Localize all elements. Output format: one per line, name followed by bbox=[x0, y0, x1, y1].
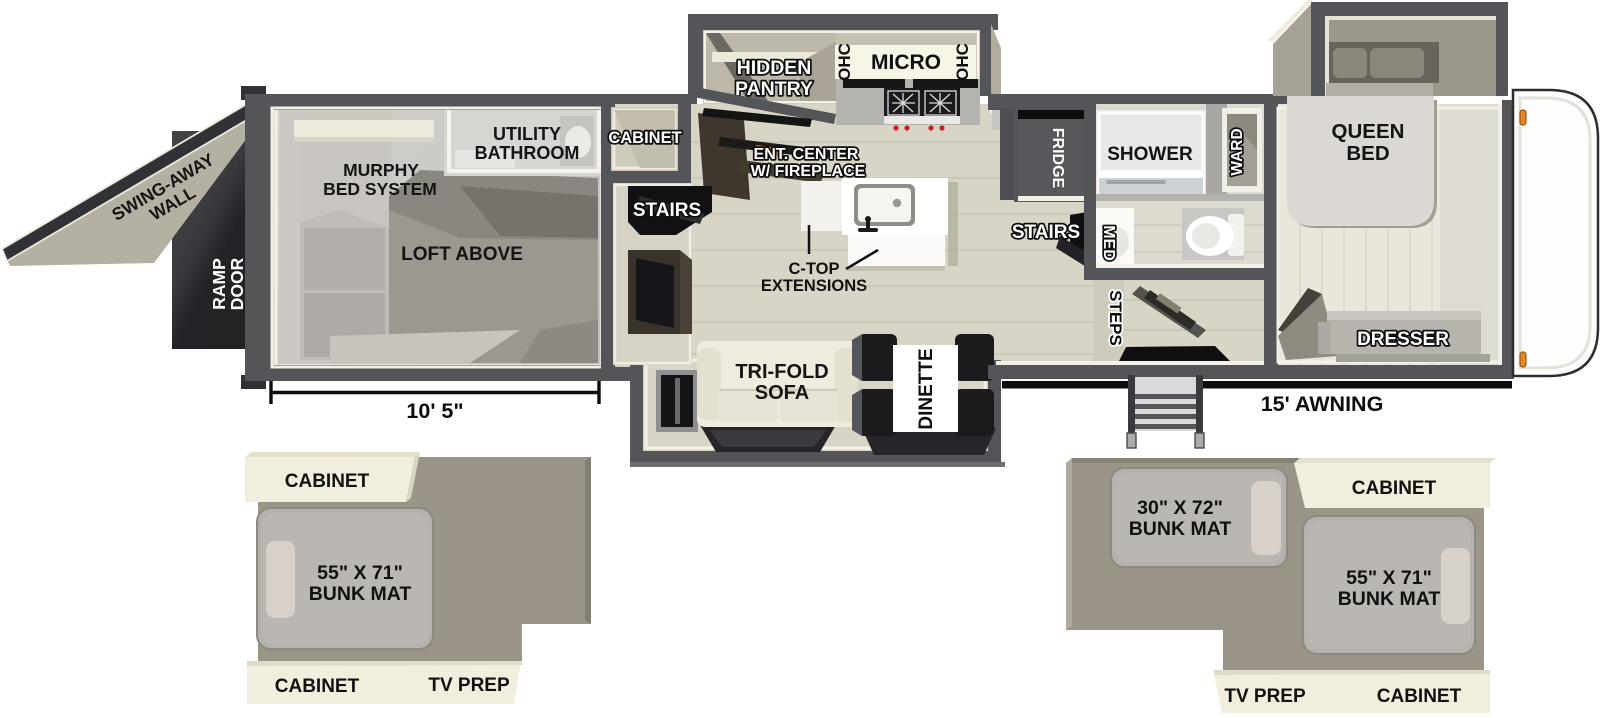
svg-text:MURPHY: MURPHY bbox=[343, 160, 419, 180]
svg-text:TV PREP: TV PREP bbox=[1224, 686, 1306, 707]
svg-text:DINETTE: DINETTE bbox=[916, 348, 937, 429]
svg-text:ENT. CENTER: ENT. CENTER bbox=[754, 146, 859, 163]
svg-text:FRIDGE: FRIDGE bbox=[1049, 128, 1066, 189]
svg-text:STAIRS: STAIRS bbox=[633, 200, 701, 221]
svg-text:OHC: OHC bbox=[953, 43, 972, 81]
svg-text:C-TOP: C-TOP bbox=[788, 260, 839, 278]
svg-text:HIDDEN: HIDDEN bbox=[737, 57, 812, 79]
svg-text:CABINET: CABINET bbox=[1352, 478, 1437, 499]
svg-text:SHOWER: SHOWER bbox=[1107, 144, 1193, 165]
svg-text:TRI-FOLD: TRI-FOLD bbox=[735, 361, 828, 383]
svg-text:WARD: WARD bbox=[1229, 128, 1246, 175]
svg-text:OHC: OHC bbox=[835, 43, 854, 81]
svg-text:55" X 71": 55" X 71" bbox=[1346, 567, 1432, 589]
svg-text:QUEEN: QUEEN bbox=[1332, 120, 1405, 143]
svg-text:BATHROOM: BATHROOM bbox=[475, 143, 580, 163]
svg-text:MED: MED bbox=[1100, 225, 1117, 261]
svg-text:55" X 71": 55" X 71" bbox=[317, 562, 403, 584]
svg-text:BED: BED bbox=[1346, 142, 1389, 165]
svg-text:LOFT ABOVE: LOFT ABOVE bbox=[401, 244, 523, 265]
svg-text:CABINET: CABINET bbox=[608, 129, 681, 147]
svg-text:RAMPDOOR: RAMPDOOR bbox=[209, 257, 247, 310]
svg-text:TV PREP: TV PREP bbox=[428, 675, 510, 696]
svg-text:BED SYSTEM: BED SYSTEM bbox=[323, 179, 437, 199]
svg-text:BUNK MAT: BUNK MAT bbox=[1129, 518, 1232, 540]
svg-text:DRESSER: DRESSER bbox=[1357, 329, 1449, 350]
svg-text:STAIRS: STAIRS bbox=[1012, 222, 1080, 243]
svg-text:SOFA: SOFA bbox=[755, 382, 809, 404]
svg-text:MICRO: MICRO bbox=[871, 51, 941, 74]
svg-text:EXTENSIONS: EXTENSIONS bbox=[761, 277, 867, 295]
svg-text:CABINET: CABINET bbox=[1377, 686, 1462, 707]
svg-text:BUNK MAT: BUNK MAT bbox=[1338, 588, 1441, 610]
svg-text:10' 5": 10' 5" bbox=[406, 399, 463, 423]
svg-text:CABINET: CABINET bbox=[275, 676, 360, 697]
svg-text:BUNK MAT: BUNK MAT bbox=[309, 583, 412, 605]
svg-text:W/ FIREPLACE: W/ FIREPLACE bbox=[751, 163, 866, 180]
svg-text:UTILITY: UTILITY bbox=[493, 124, 561, 144]
svg-text:STEPS: STEPS bbox=[1106, 290, 1125, 346]
svg-text:CABINET: CABINET bbox=[285, 471, 370, 492]
svg-text:30" X 72": 30" X 72" bbox=[1137, 497, 1223, 519]
svg-text:15' AWNING: 15' AWNING bbox=[1261, 392, 1384, 416]
svg-text:PANTRY: PANTRY bbox=[735, 78, 813, 100]
